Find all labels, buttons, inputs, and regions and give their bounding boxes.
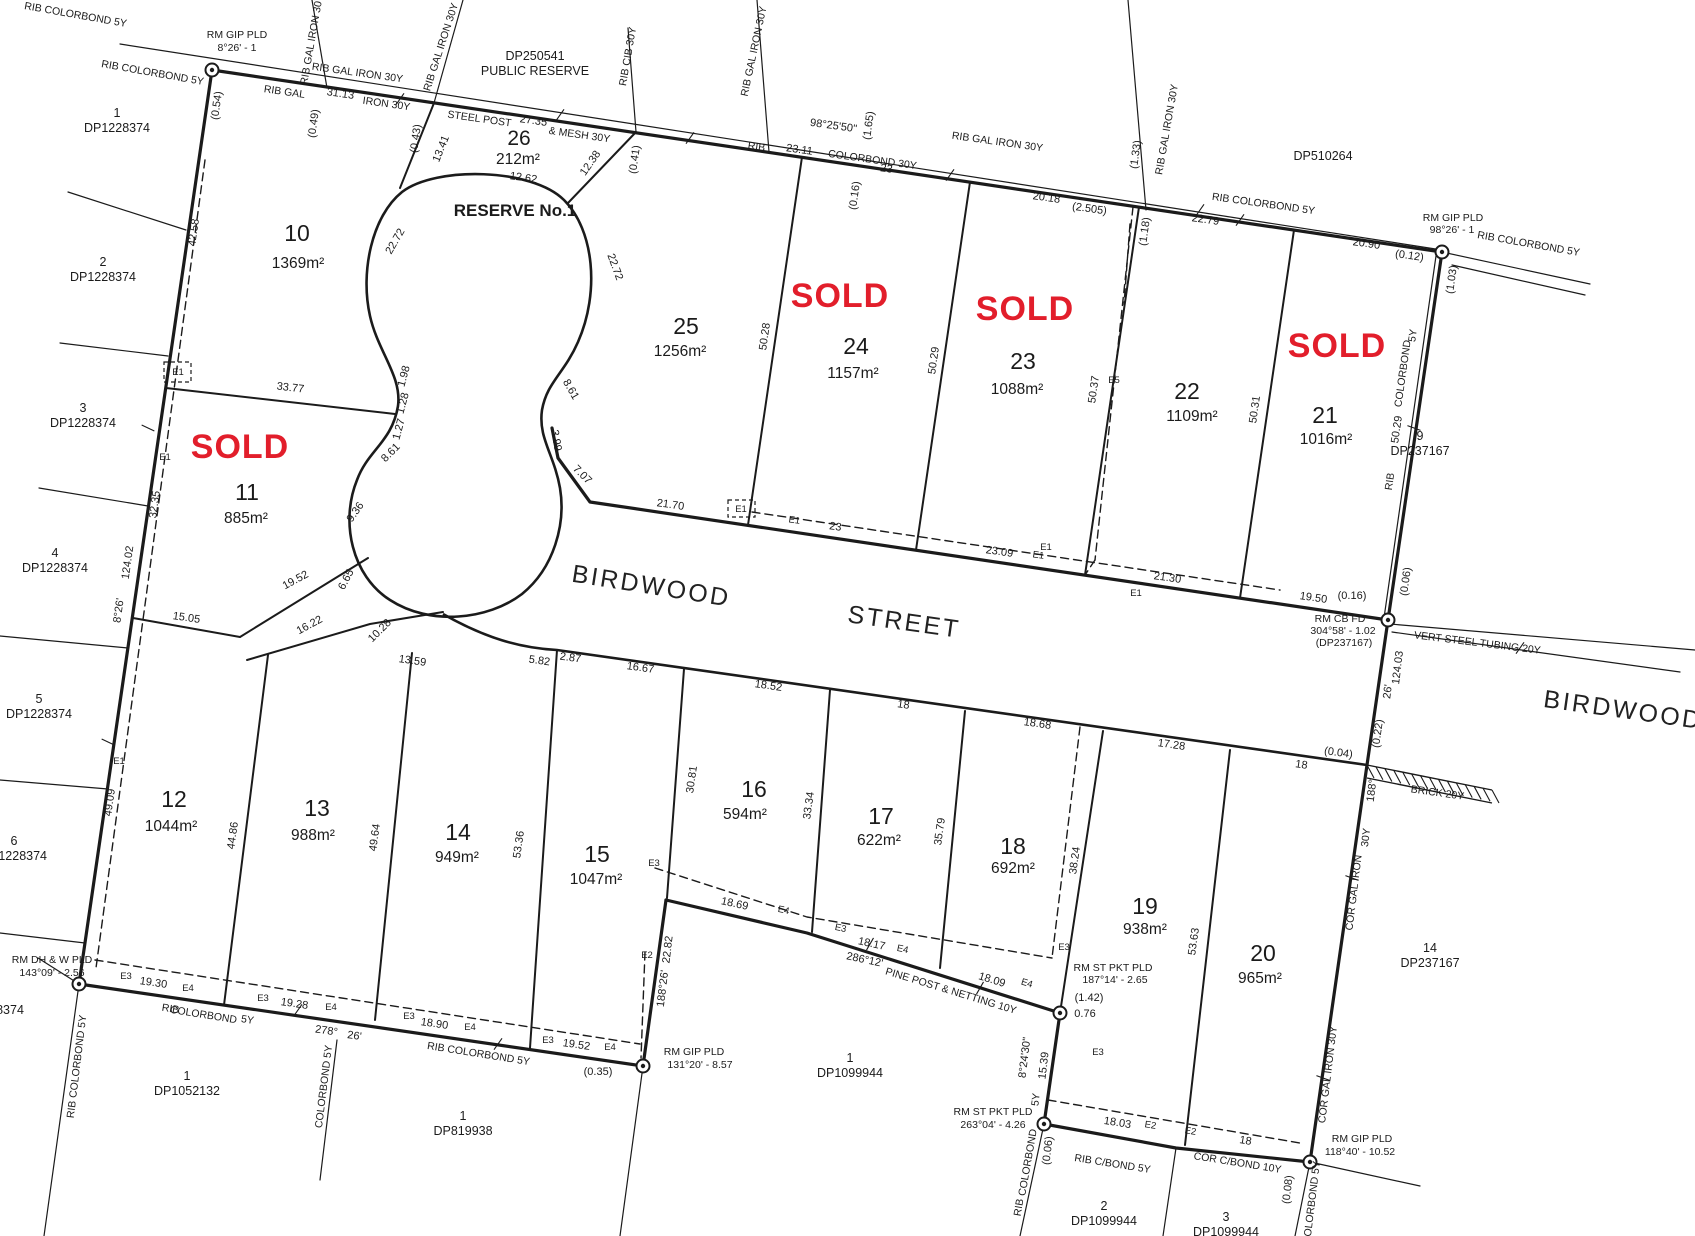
annotation-63-cor-gal-iron-30y: COR GAL IRON 30Y: [1316, 1025, 1340, 1123]
brick-hatch-0: [1367, 765, 1374, 778]
annotation-37-20-90: 20.90: [1352, 236, 1381, 252]
annotation-89-3-99: 3.99: [548, 429, 564, 452]
annotation-176-e2: E2: [1184, 1125, 1197, 1138]
annotation-134-26: 26': [346, 1029, 362, 1043]
annotation-145-rib-colorbond-5y: RIB COLORBOND 5Y: [65, 1014, 90, 1119]
annotation-46-rib: RIB: [1383, 472, 1397, 491]
parcel-5-lot-number: 6: [11, 834, 18, 848]
survey-mark-inner-5: [1058, 1011, 1062, 1015]
annotation-138-rib-colorbond-5y: RIB COLORBOND 5Y: [426, 1040, 530, 1068]
parcel-11-lot-number: 3: [1223, 1210, 1230, 1224]
annotation-72-23-09: 23.09: [985, 544, 1014, 560]
annotation-51-304-58-1-02: 304°58' - 1.02: [1310, 625, 1375, 637]
parcel-9-lot-number: 1: [847, 1051, 854, 1065]
annotation-42-rib-colorbond-5y: RIB COLORBOND 5Y: [1476, 229, 1580, 259]
annotation-164-0-76: 0.76: [1074, 1008, 1095, 1020]
annotation-168-e3: E3: [1092, 1047, 1104, 1058]
annotation-52-dp237167: (DP237167): [1316, 637, 1373, 649]
lot-12-number: 12: [161, 786, 187, 812]
lot-23-area: 1088m²: [991, 381, 1044, 398]
lot-15-number: 15: [584, 841, 610, 867]
annotation-104-e1: E1: [113, 756, 125, 767]
lot-22-area: 1109m²: [1166, 408, 1217, 425]
annotation-93-6-65: 6.65: [336, 567, 357, 592]
annotation-11-0-49: (0.49): [306, 109, 322, 139]
brick-hatch-4: [1403, 772, 1410, 785]
easement-dashed-line-8: [1048, 1100, 1300, 1143]
lot-24-number: 24: [843, 333, 869, 359]
annotation-133-278: 278°: [314, 1024, 338, 1039]
boundary-line-3: [79, 70, 212, 984]
parcel-13-lot-number: 14: [1423, 941, 1437, 955]
annotation-26-23: 23: [880, 162, 894, 176]
annotation-142-0-35: (0.35): [584, 1066, 613, 1078]
parcel-4-dp-number: DP1228374: [6, 707, 72, 721]
annotation-81-e1: E1: [1040, 542, 1052, 553]
fence-tick-5: [102, 739, 115, 745]
lot-19-area: 938m²: [1123, 921, 1167, 938]
annotation-153-e3: E3: [834, 922, 848, 935]
brick-hatch-11: [1465, 785, 1472, 798]
annotation-144-131-20-8-57: 131°20' - 8.57: [667, 1059, 732, 1071]
annotation-35-22-79: 22.79: [1191, 212, 1220, 228]
annotation-141-e4: E4: [604, 1042, 616, 1053]
parcel-3-dp-number: DP1228374: [22, 561, 88, 575]
annotation-44-colorbond: COLORBOND: [1392, 339, 1413, 408]
annotation-8-31-13: 31.13: [326, 86, 355, 102]
annotation-74-21-30: 21.30: [1153, 570, 1182, 586]
annotation-21-98-25-50: 98°25'50": [809, 117, 857, 135]
reserve-name-label: RESERVE No.1: [454, 201, 577, 220]
annotation-108-53-36: 53.36: [511, 830, 527, 859]
lot-23-number: 23: [1010, 348, 1036, 374]
annotation-22-rib: RIB: [747, 140, 766, 154]
fence-line-0: [68, 192, 186, 230]
annotation-78-50-29: 50.29: [926, 346, 942, 375]
annotation-87-8-61: 8.61: [379, 441, 403, 465]
boundary-line-4: [79, 984, 643, 1066]
lot-10-number: 10: [284, 220, 310, 246]
fence-line-5: [0, 933, 85, 943]
annotation-170-263-04-4-26: 263°04' - 4.26: [960, 1119, 1025, 1131]
annotation-6-rib-gal-iron-30y: RIB GAL IRON 30Y: [311, 61, 404, 86]
annotation-45-50-29: 50.29: [1389, 415, 1405, 444]
parcel-2-dp-number: DP1228374: [50, 416, 116, 430]
lot-12-area: 1044m²: [145, 818, 198, 835]
sold-stamp-lot-23: SOLD: [976, 290, 1074, 328]
annotation-1-rm-gip-pld: RM GIP PLD: [207, 29, 268, 41]
annotation-71-23: 23: [829, 520, 843, 534]
annotation-140-19-52: 19.52: [562, 1037, 591, 1053]
easement-dashed-line-7: [641, 952, 645, 1058]
annotation-75-e1: E1: [1130, 588, 1142, 599]
fence-line-12: [1128, 0, 1146, 210]
fence-line-2: [39, 488, 148, 506]
brick-hatch-1: [1376, 767, 1383, 780]
lot-19-number: 19: [1132, 893, 1158, 919]
lot-11-number: 11: [235, 479, 259, 505]
annotation-17-12-38: 12.38: [578, 149, 604, 178]
parcel-1-lot-number: 2: [100, 255, 107, 269]
parcel-10-lot-number: 2: [1101, 1199, 1108, 1213]
curve-boundary-1: [443, 614, 1367, 765]
lot-14-number: 14: [445, 819, 471, 845]
annotation-122-rm-dh-w-pld: RM DH & W PLD: [12, 954, 93, 966]
annotation-139-e3: E3: [542, 1035, 554, 1046]
parcel-12-dp-number: DP237167: [1390, 444, 1449, 458]
street-name-0-birdwood: BIRDWOOD: [570, 560, 733, 613]
parcel-3-lot-number: 4: [52, 546, 59, 560]
lot-13-area: 988m²: [291, 827, 335, 844]
annotation-163-1-42: (1.42): [1075, 992, 1104, 1004]
annotation-111-5-82: 5.82: [528, 654, 551, 669]
survey-mark-inner-4: [641, 1064, 645, 1068]
annotation-47-0-06: (0.06): [1398, 567, 1414, 597]
survey-mark-inner-1: [1440, 250, 1444, 254]
annotation-118-33-34: 33.34: [801, 791, 817, 820]
annotation-116-18-68: 18.68: [1023, 716, 1052, 732]
annotation-66-0-08: (0.08): [1280, 1175, 1295, 1205]
annotation-136-18-90: 18.90: [420, 1016, 449, 1032]
parcel-14-lot-number: DP250541: [505, 49, 564, 63]
annotation-79-50-37: 50.37: [1086, 375, 1102, 404]
lot-line-12: [748, 157, 802, 525]
annotation-2-8-26-1: 8°26' - 1: [218, 42, 257, 54]
fence-line-24: [620, 1066, 643, 1236]
lot-16-number: 16: [741, 776, 767, 802]
lot-21-number: 21: [1312, 402, 1338, 428]
annotation-147-e2: E2: [641, 950, 653, 961]
lot-17-area: 622m²: [857, 832, 901, 849]
curve-boundary-0: [349, 174, 591, 617]
annotation-19-rib-cib-30y: RIB CIB 30Y: [617, 26, 639, 87]
annotation-177-rib-c-bond-5y: RIB C/BOND 5Y: [1073, 1152, 1151, 1176]
annotation-3-rib-colorbond-5y: RIB COLORBOND 5Y: [100, 58, 204, 88]
annotation-137-e4: E4: [464, 1022, 476, 1033]
annotation-30-20-18: 20.18: [1032, 190, 1061, 206]
annotation-12-0-43: (0.43): [408, 124, 424, 154]
annotation-91-9-36: 9.36: [344, 500, 366, 524]
annotation-25-rib-gal-iron-30y: RIB GAL IRON 30Y: [739, 5, 770, 97]
lot-26-area: 212m²: [496, 151, 540, 168]
annotation-107-49-64: 49.64: [367, 823, 383, 852]
annotation-80-50-31: 50.31: [1247, 395, 1263, 424]
annotation-131-19-28: 19.28: [280, 996, 309, 1012]
annotation-157-pine-post-netting-10y: PINE POST & NETTING 10Y: [884, 965, 1018, 1016]
lot-14-area: 949m²: [435, 849, 479, 866]
annotation-50-rm-cb-fd: RM CB FD: [1315, 613, 1366, 625]
parcel-6-lot-number: 8374: [0, 1003, 24, 1017]
lot-line-7: [667, 669, 684, 898]
annotation-110-13-59: 13.59: [398, 653, 427, 669]
annotation-123-143-09-2-56: 143°09' - 2.56: [19, 967, 84, 979]
annotation-130-e3: E3: [257, 993, 269, 1004]
brick-hatch-2: [1385, 769, 1392, 782]
annotation-150-e3: E3: [648, 858, 660, 869]
parcel-9-dp-number: DP1099944: [817, 1066, 883, 1080]
annotation-113-16-67: 16.67: [626, 660, 655, 676]
lot-line-3: [247, 612, 443, 660]
parcel-0-dp-number: DP1228374: [84, 121, 150, 135]
lot-26-number: 26: [507, 127, 530, 150]
annotation-162-187-14-2-65: 187°14' - 2.65: [1082, 974, 1147, 986]
fence-line-6: [120, 44, 1442, 250]
annotation-120-38-24: 38.24: [1067, 846, 1083, 875]
annotation-18-13-41: 13.41: [430, 134, 451, 164]
fence-line-14: [1452, 265, 1585, 295]
annotation-97-33-77: 33.77: [276, 380, 305, 395]
annotation-70-e1: E1: [788, 514, 801, 527]
annotation-40-0-12: (0.12): [1394, 248, 1424, 264]
parcel-0-lot-number: 1: [114, 106, 121, 120]
annotation-126-e4: E4: [182, 983, 194, 994]
lot-16-area: 594m²: [723, 806, 767, 823]
parcel-8-dp-number: DP819938: [433, 1124, 492, 1138]
survey-plan-svg: RIB COLORBOND 5YRM GIP PLD8°26' - 1RIB C…: [0, 0, 1695, 1236]
annotation-132-e4: E4: [325, 1002, 337, 1013]
annotation-180-dp510264: DP510264: [1293, 149, 1352, 163]
sold-stamp-lot-24: SOLD: [791, 277, 889, 315]
annotation-160-e3: E3: [1058, 942, 1070, 953]
annotation-20-0-41: (0.41): [627, 145, 643, 175]
annotation-149-188-26: 188°26': [655, 969, 671, 1007]
annotation-54-124-03: 124.03: [1390, 650, 1406, 685]
fence-tick-4: [142, 425, 155, 431]
annotation-62-cor-gal-iron: COR GAL IRON: [1343, 854, 1364, 931]
annotation-64-rm-gip-pld: RM GIP PLD: [1332, 1133, 1393, 1145]
fence-line-1: [60, 343, 168, 356]
parcel-13-dp-number: DP237167: [1400, 956, 1459, 970]
annotation-65-118-40-10-52: 118°40' - 10.52: [1325, 1146, 1395, 1158]
annotation-114-18-52: 18.52: [754, 678, 783, 694]
street-name-1-street: STREET: [846, 600, 962, 644]
survey-mark-inner-6: [1042, 1122, 1046, 1126]
annotation-151-18-69: 18.69: [720, 895, 749, 912]
annotation-29-rib-gal-iron-30y: RIB GAL IRON 30Y: [951, 130, 1044, 155]
annotation-103-8-26: 8°26': [111, 597, 126, 623]
annotation-16-12-62: 12.62: [509, 170, 538, 186]
annotation-165-8-24-30: 8°24'30": [1017, 1036, 1034, 1078]
lot-20-number: 20: [1250, 940, 1276, 966]
annotation-101-32-35: 32.35: [147, 490, 163, 519]
brick-hatch-14: [1492, 790, 1499, 803]
cadastral-plan-canvas: RIB COLORBOND 5YRM GIP PLD8°26' - 1RIB C…: [0, 0, 1695, 1236]
annotation-95-16-22: 16.22: [295, 614, 325, 638]
lot-24-area: 1157m²: [827, 365, 878, 382]
parcel-2-lot-number: 3: [80, 401, 87, 415]
annotation-98-42-58: 42.58: [186, 218, 202, 247]
annotation-112-2-87: 2.87: [559, 651, 582, 666]
annotation-27-1-65: (1.65): [861, 111, 877, 141]
parcel-12-lot-number: 9: [1417, 429, 1424, 443]
annotation-68-21-70: 21.70: [656, 497, 685, 513]
lot-20-area: 965m²: [1238, 970, 1282, 987]
lot-line-8: [812, 690, 830, 932]
annotation-90-7-07: 7.07: [570, 463, 594, 487]
lot-21-area: 1016m²: [1300, 431, 1353, 448]
easement-dashed-line-6: [1052, 727, 1080, 958]
annotation-96-15-05: 15.05: [172, 610, 201, 626]
annotation-102-124-02: 124.02: [120, 545, 137, 580]
annotation-7-rib-gal: RIB GAL: [263, 83, 306, 101]
survey-mark-inner-3: [77, 982, 81, 986]
parcel-11-dp-number: DP1099944: [1193, 1225, 1259, 1236]
annotation-56-0-22: (0.22): [1370, 719, 1386, 749]
lot-25-area: 1256m²: [654, 343, 707, 360]
annotation-67-colorbond-5y: COLORBOND 5Y: [1301, 1160, 1323, 1236]
brick-hatch-3: [1394, 770, 1401, 783]
annotation-34-rib-gal-iron-30y: RIB GAL IRON 30Y: [1153, 83, 1181, 176]
annotation-129-5y: 5Y: [240, 1013, 255, 1027]
annotation-105-49-09: 49.09: [102, 788, 118, 817]
annotation-159-e4: E4: [1020, 977, 1034, 991]
annotation-49-19-50: 19.50: [1299, 590, 1328, 606]
lot-line-13: [916, 182, 970, 550]
annotation-76-e5: E5: [1108, 375, 1120, 386]
annotation-117-17-28: 17.28: [1157, 737, 1186, 753]
annotation-143-rm-gip-pld: RM GIP PLD: [664, 1046, 725, 1058]
parcel-10-dp-number: DP1099944: [1071, 1214, 1137, 1228]
annotation-53-vert-steel-tubing-20y: VERT STEEL TUBING 20Y: [1413, 629, 1541, 656]
annotation-109-30-81: 30.81: [684, 765, 700, 794]
annotation-174-18-03: 18.03: [1103, 1115, 1132, 1131]
annotation-148-22-82: 22.82: [660, 935, 675, 964]
annotation-119-35-79: 35.79: [932, 817, 948, 846]
annotation-124-e3: E3: [120, 971, 132, 982]
annotation-169-rm-st-pkt-pld: RM ST PKT PLD: [954, 1106, 1033, 1118]
boundary-line-0: [212, 70, 1442, 252]
annotation-58-18: 18: [1295, 758, 1309, 772]
annotation-33-1-18: (1.18): [1137, 217, 1153, 247]
lot-18-number: 18: [1000, 833, 1026, 859]
annotation-171-0-06: (0.06): [1040, 1136, 1055, 1166]
parcel-7-lot-number: 1: [184, 1069, 191, 1083]
annotation-0-rib-colorbond-5y: RIB COLORBOND 5Y: [23, 0, 127, 30]
annotation-178-18: 18: [1238, 1134, 1252, 1148]
annotation-60-brick-20y: BRICK 20Y: [1410, 783, 1465, 802]
annotation-48-0-16: (0.16): [1338, 590, 1367, 602]
brick-hatch-13: [1483, 788, 1490, 801]
parcel-14-dp-number: PUBLIC RESERVE: [481, 64, 589, 78]
parcel-7-dp-number: DP1052132: [154, 1084, 220, 1098]
lot-22-number: 22: [1174, 378, 1200, 404]
annotation-41-1-03: (1.03): [1444, 265, 1460, 295]
annotation-155-e4: E4: [896, 943, 910, 956]
fence-line-4: [0, 780, 108, 789]
lot-15-area: 1047m²: [570, 871, 623, 888]
annotation-135-e3: E3: [403, 1011, 415, 1022]
fence-tick-15: [556, 109, 564, 120]
lot-17-number: 17: [868, 803, 894, 829]
annotation-83-22-72: 22.72: [604, 252, 625, 282]
lot-11-area: 885m²: [224, 510, 268, 527]
annotation-152-e4: E4: [777, 904, 791, 917]
annotation-28-0-16: (0.16): [847, 181, 863, 211]
survey-mark-inner-0: [210, 68, 214, 72]
annotation-84-1-98: 1.98: [396, 364, 413, 388]
annotation-167-5y: 5Y: [1029, 1093, 1042, 1107]
lot-13-number: 13: [304, 795, 330, 821]
fence-line-23: [1163, 1148, 1176, 1236]
annotation-77-50-28: 50.28: [757, 322, 773, 351]
annotation-61-30y: 30Y: [1359, 828, 1373, 848]
sold-stamp-lot-21: SOLD: [1288, 327, 1386, 365]
annotation-106-44-86: 44.86: [225, 821, 241, 850]
street-name-2-birdwood: BIRDWOOD: [1542, 685, 1695, 735]
lot-line-6: [530, 650, 557, 1048]
annotation-175-e2: E2: [1144, 1119, 1157, 1132]
parcel-5-dp-number: DP1228374: [0, 849, 47, 863]
annotation-38-rm-gip-pld: RM GIP PLD: [1423, 212, 1484, 224]
annotation-88-8-61: 8.61: [560, 377, 581, 402]
annotation-125-19-30: 19.30: [139, 975, 168, 991]
annotation-92-19-52: 19.52: [281, 569, 311, 593]
annotation-115-18: 18: [897, 698, 911, 712]
annotation-10-0-54: (0.54): [209, 91, 225, 121]
annotation-121-53-63: 53.63: [1186, 927, 1202, 956]
annotation-161-rm-st-pkt-pld: RM ST PKT PLD: [1074, 962, 1153, 974]
brick-hatch-12: [1474, 786, 1481, 799]
annotation-59-188: 188°: [1365, 779, 1380, 803]
annotation-36-rib-colorbond-5y: RIB COLORBOND 5Y: [1211, 191, 1316, 217]
lot-18-area: 692m²: [991, 860, 1035, 877]
annotation-55-26: 26': [1381, 684, 1395, 700]
lot-10-area: 1369m²: [272, 255, 325, 272]
annotation-39-98-26-1: 98°26' - 1: [1430, 224, 1475, 236]
lot-25-number: 25: [673, 313, 699, 339]
sold-stamp-lot-11: SOLD: [191, 428, 289, 466]
easement-dashed-line-4: [95, 960, 640, 1044]
survey-mark-inner-2: [1386, 618, 1390, 622]
parcel-1-dp-number: DP1228374: [70, 270, 136, 284]
annotation-156-286-12: 286°12': [845, 950, 884, 969]
annotation-100-e1: E1: [159, 452, 171, 463]
parcel-4-lot-number: 5: [36, 692, 43, 706]
annotation-82-22-72: 22.72: [383, 227, 407, 257]
parcel-8-lot-number: 1: [460, 1109, 467, 1123]
annotation-99-e1: E1: [172, 367, 184, 378]
fence-line-3: [0, 636, 128, 648]
fence-line-18: [1310, 1162, 1420, 1186]
annotation-69-e1: E1: [735, 504, 747, 515]
